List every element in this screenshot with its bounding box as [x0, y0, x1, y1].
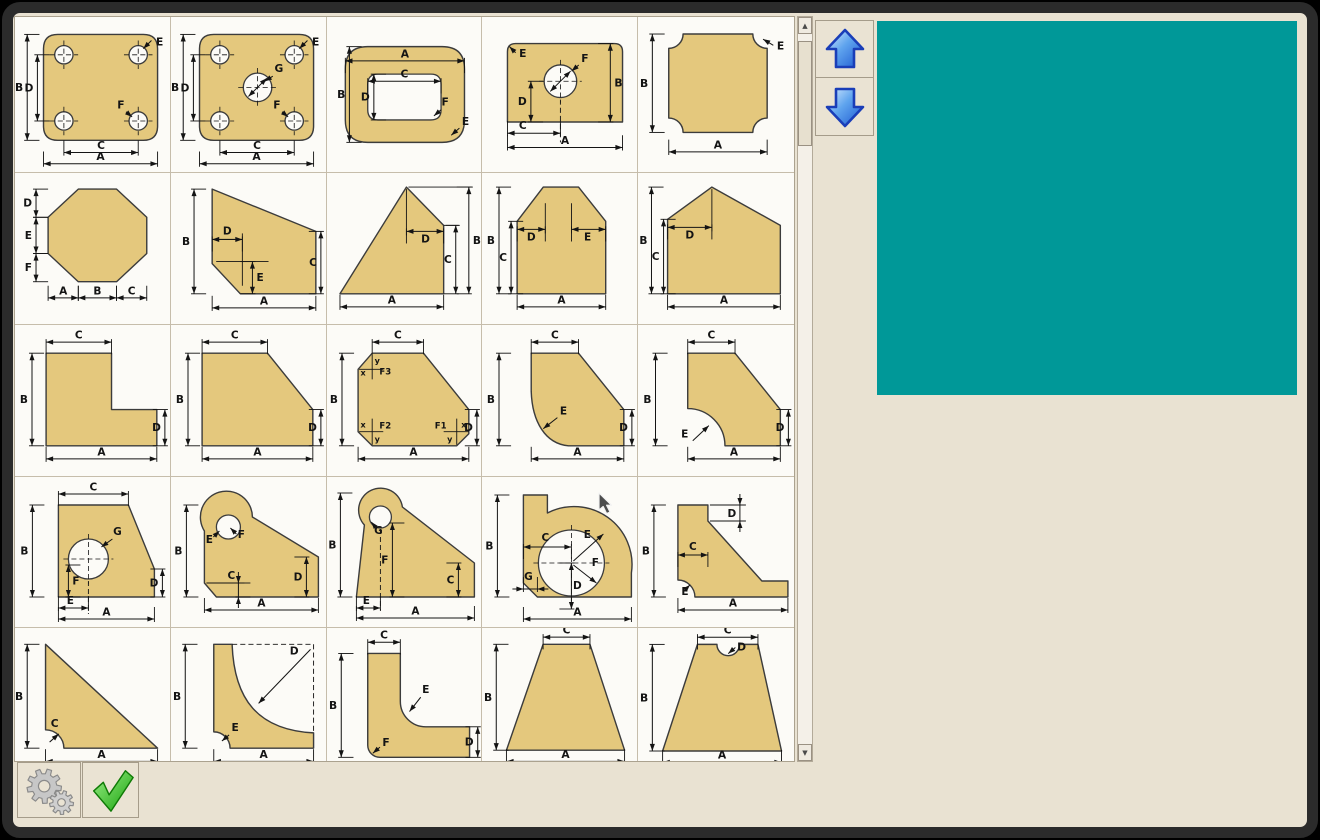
svg-text:C: C: [708, 330, 716, 342]
svg-text:D: D: [686, 229, 695, 241]
svg-text:D: D: [464, 736, 473, 749]
shape-cell-angle-gusset[interactable]: BDCEA: [638, 477, 794, 628]
svg-text:C: C: [75, 330, 83, 342]
svg-text:E: E: [519, 47, 526, 60]
svg-text:E: E: [777, 39, 784, 52]
svg-text:E: E: [584, 231, 591, 243]
svg-text:B: B: [640, 235, 648, 247]
svg-text:C: C: [444, 254, 452, 266]
svg-text:B: B: [174, 546, 182, 558]
svg-text:A: A: [562, 748, 571, 761]
svg-text:C: C: [128, 285, 136, 297]
shape-cell-slant-lobe-bracket[interactable]: BGFCEA: [327, 477, 483, 628]
svg-text:F1: F1: [434, 422, 446, 432]
svg-text:x: x: [360, 368, 366, 377]
svg-text:A: A: [257, 598, 266, 610]
down-arrow-icon: [822, 84, 868, 130]
shape-cell-octagon[interactable]: DEFABC: [15, 173, 171, 325]
svg-text:A: A: [720, 294, 729, 306]
shape-cell-double-chamfer-gable[interactable]: BCDEA: [482, 173, 638, 325]
svg-text:B: B: [337, 88, 345, 101]
svg-text:B: B: [484, 691, 492, 704]
svg-text:B: B: [15, 81, 23, 94]
svg-text:E: E: [682, 586, 689, 598]
svg-text:B: B: [173, 690, 181, 703]
shape-cell-chamfer-plate-hole[interactable]: CBGFEDA: [15, 477, 171, 628]
svg-text:D: D: [290, 644, 299, 657]
svg-text:A: A: [387, 294, 396, 306]
svg-text:E: E: [461, 115, 468, 128]
shape-library-window: BDEFCABDGEFCAACBDFEEFBDCAEBADEFABCBDECAD…: [2, 2, 1318, 838]
shape-cell-slant-top-plate-notch[interactable]: BDECA: [171, 173, 327, 325]
gears-icon: [20, 765, 78, 815]
shape-cell-lobe-bracket[interactable]: EFBCDA: [171, 477, 327, 628]
svg-text:C: C: [500, 252, 508, 264]
shape-cell-scalloped-corner-square[interactable]: EBA: [638, 17, 794, 173]
svg-text:A: A: [253, 446, 262, 458]
svg-text:F: F: [117, 99, 124, 112]
svg-text:x: x: [461, 421, 467, 430]
svg-text:D: D: [223, 225, 232, 237]
shape-cell-plate-four-holes-center-hole[interactable]: BDGEFCA: [171, 17, 327, 173]
svg-text:B: B: [176, 394, 184, 406]
shape-cell-trapezoid-notch[interactable]: CDBA: [638, 628, 794, 762]
svg-text:F: F: [25, 262, 32, 274]
settings-button[interactable]: [17, 762, 81, 818]
svg-text:B: B: [642, 546, 650, 558]
svg-text:B: B: [15, 690, 23, 703]
svg-text:D: D: [360, 91, 369, 104]
svg-text:B: B: [487, 394, 495, 406]
svg-text:D: D: [293, 572, 302, 584]
svg-text:E: E: [206, 534, 213, 546]
svg-text:E: E: [256, 272, 263, 284]
svg-text:C: C: [380, 629, 388, 642]
svg-text:G: G: [113, 526, 122, 538]
svg-text:E: E: [231, 721, 238, 734]
svg-text:B: B: [644, 394, 652, 406]
svg-text:y: y: [374, 356, 380, 365]
svg-text:F: F: [381, 555, 388, 567]
page-down-button[interactable]: [815, 78, 874, 136]
svg-text:C: C: [563, 628, 571, 637]
svg-text:A: A: [252, 150, 261, 163]
svg-text:B: B: [615, 76, 623, 89]
svg-text:A: A: [714, 138, 723, 151]
svg-text:D: D: [518, 95, 527, 108]
svg-text:E: E: [67, 595, 74, 607]
svg-text:A: A: [260, 295, 269, 307]
svg-text:B: B: [329, 699, 337, 712]
svg-text:C: C: [400, 68, 408, 81]
scrollbar-up-icon: ▲: [802, 22, 807, 30]
shape-cell-plate-four-holes[interactable]: BDEFCA: [15, 17, 171, 173]
svg-text:B: B: [329, 394, 337, 406]
scrollbar-thumb[interactable]: [798, 41, 812, 146]
svg-text:D: D: [573, 580, 582, 592]
svg-text:C: C: [519, 119, 527, 132]
shape-grid: BDEFCABDGEFCAACBDFEEFBDCAEBADEFABCBDECAD…: [14, 16, 795, 762]
svg-text:B: B: [171, 81, 179, 94]
svg-text:A: A: [411, 606, 420, 618]
svg-text:D: D: [152, 422, 161, 434]
svg-text:D: D: [308, 422, 317, 434]
svg-text:D: D: [527, 231, 536, 243]
svg-text:A: A: [574, 446, 583, 458]
svg-text:C: C: [51, 717, 59, 730]
svg-text:C: C: [542, 532, 550, 544]
shape-cell-trapezoid[interactable]: CBA: [482, 628, 638, 762]
svg-text:A: A: [102, 607, 111, 619]
svg-text:A: A: [59, 285, 68, 297]
svg-text:D: D: [24, 81, 33, 94]
svg-text:B: B: [20, 394, 28, 406]
scrollbar-up-button[interactable]: ▲: [798, 17, 812, 34]
svg-text:C: C: [394, 330, 402, 342]
svg-text:B: B: [93, 285, 101, 297]
svg-text:A: A: [558, 294, 567, 306]
svg-text:D: D: [23, 198, 32, 210]
svg-text:A: A: [400, 47, 409, 60]
svg-text:B: B: [20, 546, 28, 558]
svg-text:A: A: [718, 749, 727, 762]
shape-cell-peaked-right-triangle[interactable]: DBCA: [327, 173, 483, 325]
svg-text:B: B: [640, 691, 648, 704]
svg-text:C: C: [231, 330, 239, 342]
svg-text:B: B: [487, 235, 495, 247]
svg-text:A: A: [96, 150, 105, 163]
svg-text:A: A: [97, 748, 106, 761]
svg-text:F: F: [238, 529, 245, 541]
svg-text:C: C: [446, 575, 454, 587]
svg-text:B: B: [328, 540, 336, 552]
svg-text:C: C: [90, 482, 98, 494]
svg-text:F: F: [582, 52, 589, 65]
svg-text:C: C: [551, 330, 559, 342]
check-icon: [86, 765, 136, 815]
svg-text:B: B: [486, 541, 494, 553]
svg-text:D: D: [421, 233, 430, 245]
svg-text:E: E: [156, 36, 163, 49]
svg-text:F: F: [72, 576, 79, 588]
svg-text:E: E: [584, 529, 591, 541]
svg-text:E: E: [362, 595, 369, 607]
svg-text:F2: F2: [379, 422, 391, 432]
svg-text:F3: F3: [379, 367, 391, 377]
up-arrow-icon: [822, 26, 868, 72]
svg-text:F: F: [592, 557, 599, 569]
svg-text:C: C: [689, 541, 697, 553]
shape-cell-rounded-plate-rounded-slot[interactable]: ACBDFE: [327, 17, 483, 173]
scrollbar-down-icon: ▼: [802, 749, 807, 757]
svg-text:D: D: [619, 422, 628, 434]
shape-cell-gable-pentagon[interactable]: BCDA: [638, 173, 794, 325]
shape-cell-l-plate[interactable]: CBDA: [15, 325, 171, 477]
shape-cell-bearing-block[interactable]: BCEFDGA: [482, 477, 638, 628]
svg-text:E: E: [560, 406, 567, 418]
page-nav: [815, 20, 874, 136]
svg-text:C: C: [724, 628, 732, 637]
page-up-button[interactable]: [815, 20, 874, 78]
shape-cell-concave-gusset[interactable]: BDEA: [171, 628, 327, 762]
svg-text:D: D: [776, 422, 785, 434]
svg-text:A: A: [729, 598, 738, 610]
svg-text:E: E: [681, 429, 688, 441]
svg-text:A: A: [409, 446, 418, 458]
confirm-button[interactable]: [82, 762, 139, 818]
scrollbar-down-button[interactable]: ▼: [798, 744, 812, 761]
svg-text:A: A: [259, 748, 268, 761]
svg-text:y: y: [447, 435, 453, 444]
svg-text:A: A: [574, 607, 583, 619]
svg-text:F: F: [382, 736, 389, 749]
svg-text:C: C: [309, 257, 317, 269]
svg-text:B: B: [182, 236, 190, 248]
svg-text:y: y: [374, 435, 380, 444]
svg-text:A: A: [561, 134, 570, 147]
svg-text:F: F: [273, 99, 280, 112]
shape-cell-chamfer-corner-plate[interactable]: CBDA: [171, 325, 327, 477]
shape-cell-fillet-corner-plate[interactable]: CBEDA: [482, 325, 638, 477]
svg-text:A: A: [730, 446, 739, 458]
svg-text:D: D: [737, 641, 746, 654]
shape-cell-plate-single-hole[interactable]: EFBDCA: [482, 17, 638, 173]
vertical-scrollbar[interactable]: ▲ ▼: [797, 16, 813, 762]
svg-text:D: D: [728, 508, 737, 520]
svg-text:G: G: [524, 571, 533, 583]
shape-cell-triple-chamfer-plate[interactable]: CBDAF3xyF2xyF1xy: [327, 325, 483, 477]
svg-text:F: F: [441, 96, 448, 109]
svg-text:E: E: [25, 230, 32, 242]
svg-text:B: B: [472, 235, 480, 247]
svg-text:G: G: [374, 525, 383, 537]
svg-text:G: G: [274, 62, 283, 75]
svg-text:C: C: [227, 570, 235, 582]
svg-text:C: C: [652, 251, 660, 263]
svg-text:E: E: [312, 36, 319, 49]
svg-text:D: D: [150, 578, 159, 590]
svg-text:E: E: [422, 683, 429, 696]
svg-text:B: B: [640, 77, 648, 90]
svg-text:x: x: [360, 421, 366, 430]
preview-panel: [877, 21, 1297, 395]
svg-text:A: A: [97, 446, 106, 458]
shape-cell-triangle-gusset[interactable]: BCA: [15, 628, 171, 762]
svg-text:D: D: [180, 81, 189, 94]
shape-cell-l-bracket-fillet[interactable]: CBEFD: [327, 628, 483, 762]
shape-cell-quarter-notch-plate[interactable]: CBEDA: [638, 325, 794, 477]
